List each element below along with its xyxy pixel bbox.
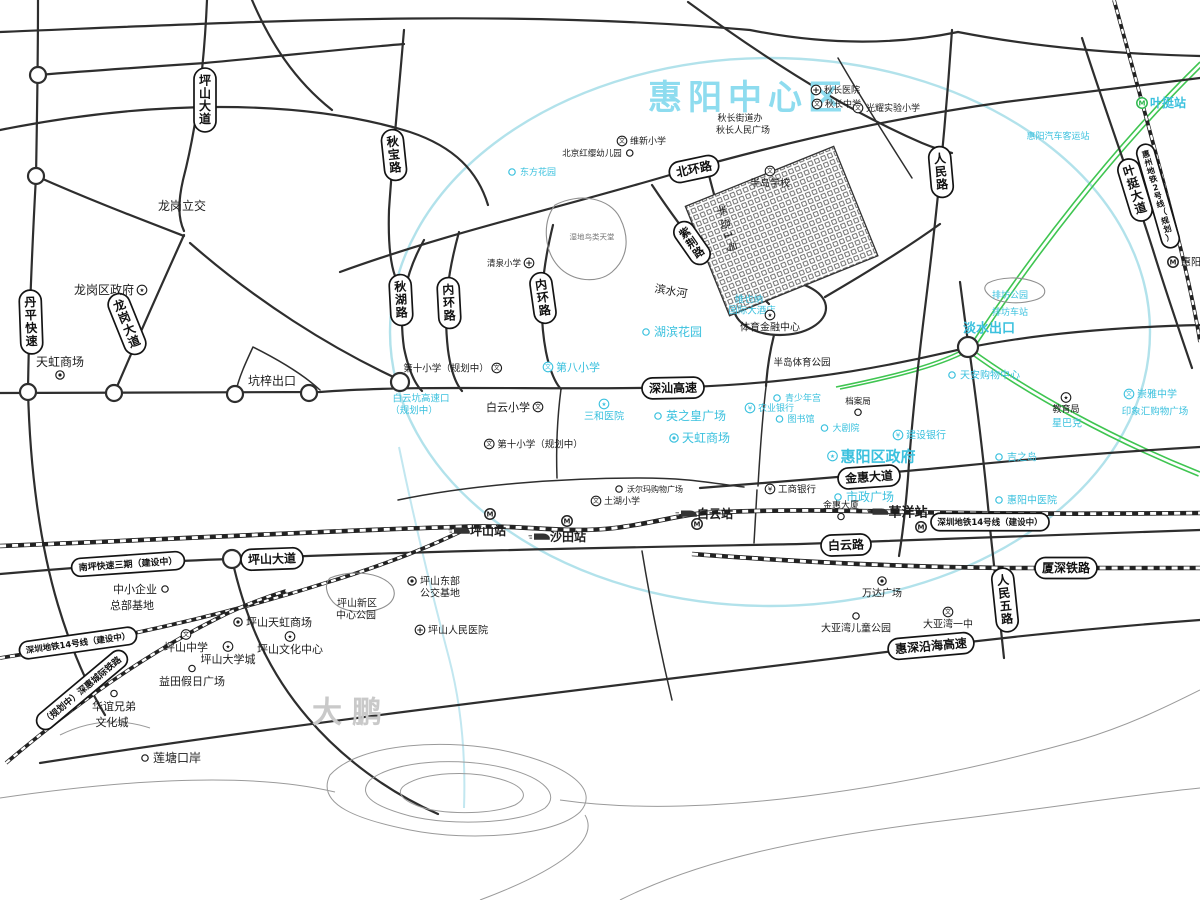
svg-text:坑梓出口: 坑梓出口 [248, 373, 296, 388]
svg-text:排坊车站: 排坊车站 [992, 306, 1028, 318]
dot-icon [643, 329, 649, 335]
map-label: （规划中） [390, 404, 438, 416]
school-icon: 文 [765, 166, 775, 176]
svg-text:M: M [694, 521, 701, 529]
map-label: 秋长医院+ [811, 84, 860, 96]
map-label: 总部基地 [110, 598, 154, 612]
svg-text:莲塘口岸: 莲塘口岸 [153, 750, 201, 765]
dot-icon [111, 690, 117, 696]
svg-text:惠阳中医院: 惠阳中医院 [1007, 494, 1057, 507]
map-label: 维新小学文 [617, 135, 666, 147]
svg-text:农业银行: 农业银行 [758, 402, 794, 414]
svg-text:文: 文 [1126, 390, 1132, 398]
svg-text:三和医院: 三和医院 [584, 410, 624, 423]
svg-text:北京红缨幼儿园: 北京红缨幼儿园 [562, 148, 622, 159]
road-pill: 秋湖路 [389, 274, 414, 326]
map-label: 坪山天虹商场 [234, 615, 312, 629]
school-icon: 文 [181, 630, 191, 640]
map-label: 文化城 [96, 715, 129, 729]
svg-text:光耀实验小学: 光耀实验小学 [866, 102, 920, 114]
dot-icon [776, 416, 782, 422]
svg-text:文: 文 [945, 608, 951, 616]
map-label: 湿地鸟类天堂 [570, 232, 615, 242]
svg-text:半岛体育公园: 半岛体育公园 [773, 356, 830, 368]
road-pill: 深圳地铁14号线（建设中） [931, 513, 1049, 531]
school-icon: 文 [591, 496, 601, 506]
map-label: 惠阳区政府★ [828, 447, 916, 465]
dot-icon [774, 395, 780, 401]
svg-text:文: 文 [535, 403, 541, 411]
dot-icon [627, 150, 633, 156]
svg-text:半岛学校: 半岛学校 [750, 177, 790, 190]
svg-text:文: 文 [486, 440, 492, 448]
svg-text:文: 文 [494, 364, 500, 372]
hosp-icon: + [811, 85, 821, 96]
svg-text:文: 文 [814, 100, 820, 108]
map-label: 秋长街道办 [717, 112, 762, 124]
svg-text:坪山站: 坪山站 [470, 523, 506, 538]
svg-text:坪山文化中心: 坪山文化中心 [257, 642, 323, 656]
road-pill: 秋宝路 [380, 129, 407, 182]
gov-icon: ★ [828, 451, 838, 461]
school-icon: 文 [617, 136, 627, 146]
svg-text:草洋站: 草洋站 [888, 505, 927, 521]
svg-text:大亚湾一中: 大亚湾一中 [923, 618, 973, 631]
svg-text:文: 文 [545, 363, 551, 371]
metro-icon: M [562, 516, 572, 526]
map-label: 第十小学（规划中）文 [403, 362, 501, 374]
svg-text:★: ★ [602, 402, 607, 408]
svg-text:淡水出口: 淡水出口 [963, 321, 1015, 337]
gov-icon: ★ [285, 632, 295, 642]
svg-text:龙岗立交: 龙岗立交 [158, 198, 206, 213]
map-label: 土湖小学文 [591, 495, 640, 507]
gov-icon: ★ [765, 310, 775, 320]
svg-text:大剧院: 大剧院 [832, 422, 859, 434]
school-icon: 文 [853, 103, 863, 113]
svg-text:沙田站: 沙田站 [550, 529, 586, 544]
svg-text:吉之岛: 吉之岛 [1007, 451, 1037, 464]
svg-text:秋长人民广场: 秋长人民广场 [716, 124, 770, 136]
school-icon: 文 [1124, 389, 1134, 399]
map-label: 惠阳中心区 [648, 78, 848, 118]
dot-icon [855, 409, 861, 415]
svg-text:总部基地: 总部基地 [110, 598, 154, 612]
shop-icon [56, 371, 64, 379]
svg-text:白云路: 白云路 [828, 537, 866, 553]
svg-text:工商银行: 工商银行 [778, 483, 817, 495]
svg-text:惠阳汽车客运站: 惠阳汽车客运站 [1026, 130, 1089, 142]
map-label: 白云坑高速口 [392, 392, 449, 404]
map-label: 坪山新区 [337, 597, 377, 610]
svg-text:中心公园: 中心公园 [336, 609, 376, 622]
metro-icon: M [916, 522, 926, 532]
svg-text:文: 文 [767, 167, 773, 175]
map-label: 天安购物中心 [949, 369, 1020, 382]
svg-text:深圳地铁14号线（建设中）: 深圳地铁14号线（建设中） [937, 517, 1042, 528]
bank-icon: ¥ [765, 484, 775, 494]
svg-text:白云小学: 白云小学 [486, 400, 530, 414]
map-label: 维也纳 [735, 293, 764, 305]
map-label: 龙岗立交 [158, 198, 206, 213]
map-label: 排坊公园 [992, 289, 1028, 301]
gov-icon: ★ [599, 399, 609, 409]
svg-text:湖滨花园: 湖滨花园 [654, 324, 702, 339]
svg-text:中小企业: 中小企业 [113, 582, 157, 596]
svg-text:第八小学: 第八小学 [556, 360, 600, 374]
dot-icon [835, 494, 841, 500]
svg-text:湿地鸟类天堂: 湿地鸟类天堂 [570, 232, 615, 242]
svg-text:秋长医院: 秋长医院 [824, 84, 860, 96]
dot-icon [189, 665, 195, 671]
map-label: 半岛体育公园 [773, 356, 830, 368]
svg-text:第十小学（规划中）: 第十小学（规划中） [403, 362, 489, 374]
svg-text:M: M [487, 511, 494, 519]
svg-text:体育金融中心: 体育金融中心 [740, 321, 800, 334]
svg-text:坪山中学: 坪山中学 [164, 640, 208, 654]
station-label: M [562, 516, 572, 526]
metro-icon: M [485, 509, 495, 519]
metro-icon: M [692, 519, 702, 529]
svg-text:深汕高速: 深汕高速 [649, 380, 697, 396]
map-label: 公交基地 [420, 587, 460, 600]
svg-text:秋长街道办: 秋长街道办 [717, 112, 762, 124]
shop-icon [878, 577, 886, 585]
road-pill: 内环路 [437, 277, 462, 329]
svg-text:英之皇广场: 英之皇广场 [666, 409, 726, 423]
shop-icon [408, 577, 416, 585]
map-label: 大鹏 [312, 696, 392, 731]
svg-text:叶挺站: 叶挺站 [1150, 95, 1186, 110]
svg-text:档案局: 档案局 [845, 396, 871, 407]
station-label: M [916, 522, 926, 532]
gov-icon: ★ [1061, 393, 1071, 403]
road-pill: 坪山大道 [194, 68, 216, 132]
svg-text:★: ★ [140, 288, 145, 294]
gov-icon: ★ [137, 285, 147, 295]
dot-icon [996, 454, 1002, 460]
svg-text:公交基地: 公交基地 [420, 587, 460, 600]
shop-icon [670, 434, 678, 442]
svg-text:大鹏: 大鹏 [312, 696, 392, 731]
svg-text:文: 文 [855, 104, 861, 112]
metro-icon: M [1168, 257, 1178, 267]
svg-text:建设银行: 建设银行 [906, 429, 946, 442]
svg-text:土湖小学: 土湖小学 [604, 495, 640, 507]
svg-text:+: + [812, 86, 820, 96]
road-pill: 深汕高速 [642, 377, 704, 399]
svg-text:★: ★ [1064, 396, 1069, 402]
svg-text:大亚湾儿童公园: 大亚湾儿童公园 [821, 622, 891, 635]
svg-text:坪山大道: 坪山大道 [199, 73, 211, 126]
hosp-icon: + [524, 258, 534, 269]
station-label: 惠阳M [1168, 256, 1200, 269]
school-icon: 文 [484, 439, 494, 449]
svg-text:惠阳区政府: 惠阳区政府 [840, 447, 915, 465]
dot-icon [142, 755, 148, 761]
svg-text:教育局: 教育局 [1052, 403, 1079, 415]
svg-text:（规划中）: （规划中） [390, 404, 438, 416]
map-label: 英之皇广场 [655, 409, 726, 423]
svg-text:天虹商场: 天虹商场 [36, 354, 84, 369]
dot-icon [853, 613, 859, 619]
svg-text:华谊兄弟: 华谊兄弟 [92, 699, 136, 713]
road-pill: 人民路 [928, 146, 954, 199]
station-label: M [692, 519, 702, 529]
svg-text:金惠大厦: 金惠大厦 [823, 499, 859, 511]
road-pill: 丹平快速 [19, 290, 43, 355]
svg-text:文: 文 [593, 497, 599, 505]
svg-text:天安购物中心: 天安购物中心 [960, 369, 1020, 382]
svg-text:维新小学: 维新小学 [630, 135, 666, 147]
map-label: 排坊车站 [992, 306, 1028, 318]
map-label: 清泉小学+ [487, 258, 534, 269]
svg-text:+: + [416, 626, 424, 636]
dot-icon [949, 372, 955, 378]
svg-text:文化城: 文化城 [96, 715, 129, 729]
map-label: 惠阳汽车客运站 [1026, 130, 1089, 142]
svg-text:坪山东部: 坪山东部 [420, 575, 460, 588]
svg-text:惠阳: 惠阳 [1181, 256, 1200, 269]
svg-text:文: 文 [619, 137, 625, 145]
dot-icon [616, 486, 622, 492]
dot-icon [509, 169, 515, 175]
school-icon: 文 [943, 607, 953, 617]
map-label: 中心公园 [336, 609, 376, 622]
svg-text:¥: ¥ [768, 485, 773, 493]
svg-text:白云站: 白云站 [697, 506, 733, 521]
svg-text:¥: ¥ [896, 431, 901, 439]
svg-text:坪山新区: 坪山新区 [337, 597, 377, 610]
svg-text:文: 文 [183, 631, 189, 639]
road-pill: 坪山大道 [241, 547, 304, 570]
map-label: 秋长人民广场 [716, 124, 770, 136]
svg-text:清泉小学: 清泉小学 [487, 258, 522, 269]
map-label: 淡水出口 [963, 321, 1015, 337]
map-label: 坑梓出口 [248, 373, 296, 388]
road-pill: 厦深铁路 [1035, 558, 1097, 579]
svg-text:印象汇购物广场: 印象汇购物广场 [1122, 405, 1189, 417]
svg-text:白云坑高速口: 白云坑高速口 [392, 392, 449, 404]
dot-icon [838, 513, 844, 519]
svg-text:M: M [1170, 259, 1177, 267]
svg-text:M: M [918, 524, 925, 532]
station-label: M [485, 509, 495, 519]
svg-text:第十小学（规划中）: 第十小学（规划中） [497, 438, 583, 450]
dot-icon [996, 497, 1002, 503]
map-label: 印象汇购物广场 [1122, 405, 1189, 417]
shop-icon [234, 618, 242, 626]
svg-text:坪山大学城: 坪山大学城 [201, 652, 256, 666]
school-icon: 文 [533, 402, 543, 412]
svg-text:厦深铁路: 厦深铁路 [1042, 560, 1091, 575]
school-icon: 文 [492, 363, 502, 373]
svg-text:坪山人民医院: 坪山人民医院 [428, 624, 488, 637]
svg-text:惠阳中心区: 惠阳中心区 [648, 78, 848, 118]
metrog-icon: M [1137, 98, 1147, 108]
school-icon: 文 [812, 99, 822, 109]
road-pill: 金惠大道 [837, 464, 900, 489]
svg-text:★: ★ [226, 645, 231, 651]
map-label: 第十小学（规划中）文 [484, 438, 582, 450]
map-label: 农业银行¥ [745, 402, 794, 414]
school-icon: 文 [543, 362, 553, 372]
road-pill: 白云路 [821, 534, 872, 557]
dot-icon [821, 425, 827, 431]
svg-text:¥: ¥ [748, 404, 753, 412]
svg-text:东方花园: 东方花园 [520, 166, 556, 178]
svg-text:★: ★ [830, 454, 835, 460]
svg-text:坪山天虹商场: 坪山天虹商场 [246, 615, 312, 629]
svg-text:M: M [564, 518, 571, 526]
svg-text:沃尔玛购物广场: 沃尔玛购物广场 [627, 484, 683, 494]
map-label: 星巴克 [1052, 418, 1082, 430]
dot-icon [655, 413, 661, 419]
svg-text:M: M [1139, 100, 1146, 108]
svg-text:星巴克: 星巴克 [1052, 418, 1082, 430]
bank-icon: ¥ [745, 403, 755, 413]
svg-text:★: ★ [768, 313, 773, 319]
svg-text:崇雅中学: 崇雅中学 [1137, 388, 1177, 401]
svg-text:维也纳: 维也纳 [735, 293, 764, 305]
svg-text:★: ★ [288, 635, 293, 641]
map-canvas: 坪山大道秋宝路秋湖路内环路内环路北环路紫荆路人民路深汕高速龙岗大道丹平快速金惠大… [0, 0, 1200, 900]
svg-text:青少年宫: 青少年宫 [785, 392, 821, 404]
svg-text:坪山大道: 坪山大道 [248, 550, 297, 567]
svg-text:万达广场: 万达广场 [862, 587, 902, 600]
svg-text:排坊公园: 排坊公园 [992, 289, 1028, 301]
svg-text:益田假日广场: 益田假日广场 [159, 674, 225, 688]
svg-text:龙岗区政府: 龙岗区政府 [74, 282, 134, 297]
dot-icon [162, 586, 168, 592]
svg-text:天虹商场: 天虹商场 [682, 430, 730, 445]
hosp-icon: + [415, 625, 425, 636]
svg-text:图书馆: 图书馆 [787, 413, 814, 425]
bank-icon: ¥ [893, 430, 903, 440]
gov-icon: ★ [223, 642, 233, 652]
svg-text:+: + [525, 259, 533, 269]
